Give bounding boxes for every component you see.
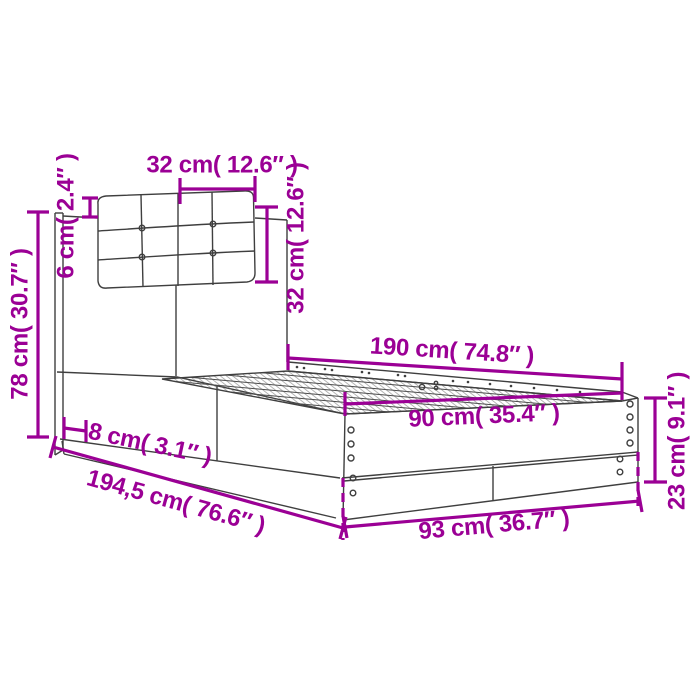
dimension-headboard-thickness bbox=[64, 417, 86, 442]
label-total-length: 194,5 cm( 76.6″ ) bbox=[84, 464, 268, 539]
dimension-labels: 32 cm( 12.6″ ) 6 cm( 2.4″ ) 78 cm( 30.7″… bbox=[7, 152, 691, 546]
label-cushion-width-top: 32 cm( 12.6″ ) bbox=[146, 152, 297, 179]
label-frame-height: 23 cm( 9.1″ ) bbox=[664, 372, 691, 510]
product-dimension-image: 32 cm( 12.6″ ) 6 cm( 2.4″ ) 78 cm( 30.7″… bbox=[0, 0, 700, 700]
rail-hole bbox=[434, 381, 437, 384]
label-cushion-overhang: 6 cm( 2.4″ ) bbox=[53, 153, 80, 278]
label-cushion-height: 32 cm( 12.6″ ) bbox=[283, 162, 310, 313]
label-frame-width: 93 cm( 36.7″ ) bbox=[417, 505, 570, 545]
headboard-cushion bbox=[98, 191, 255, 288]
bed-frame-dimension-diagram: 32 cm( 12.6″ ) 6 cm( 2.4″ ) 78 cm( 30.7″… bbox=[0, 0, 700, 700]
label-headboard-height: 78 cm( 30.7″ ) bbox=[7, 248, 34, 399]
label-slat-width: 90 cm( 35.4″ ) bbox=[408, 399, 560, 433]
dimension-cushion-overhang bbox=[82, 198, 98, 217]
dimension-cushion-width-top bbox=[180, 176, 255, 204]
